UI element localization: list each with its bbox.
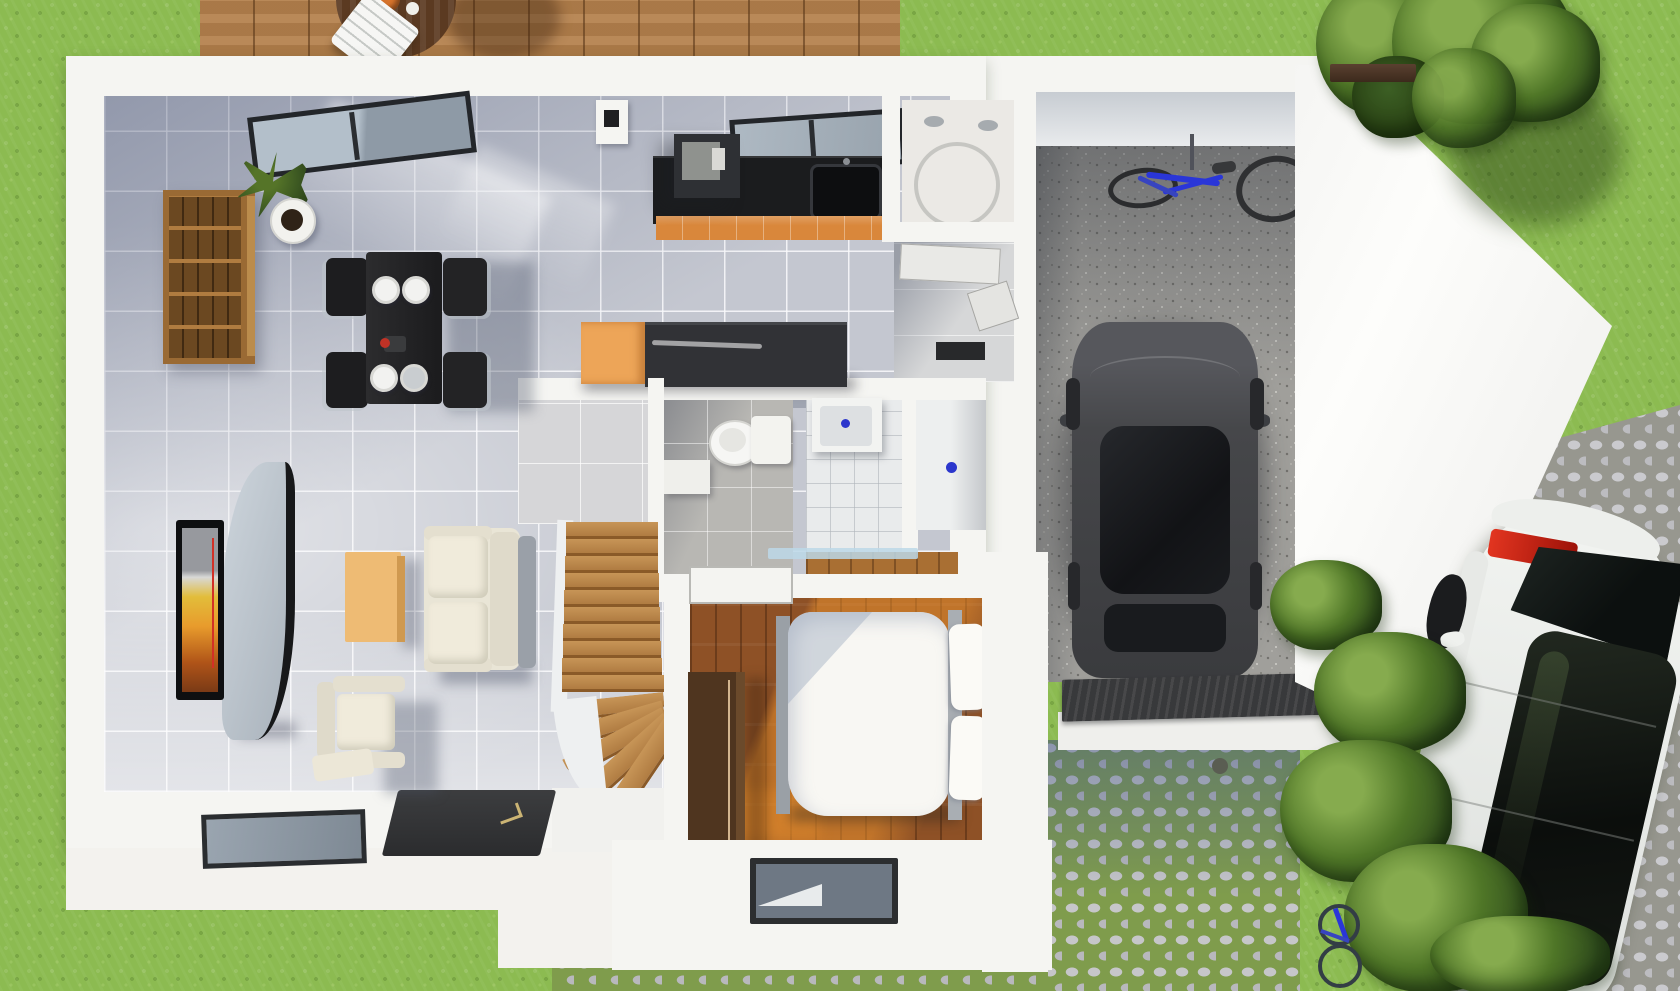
stair-landing [518,400,664,524]
bathroom-faucet-dot [841,419,850,428]
garage-car [1072,322,1258,678]
dining-chair-tr [443,258,487,316]
hedge-strip [1330,64,1416,82]
utility-wall-south [882,222,1014,242]
toilet-seat [719,428,746,452]
stair-tread [562,675,664,692]
plate [372,276,400,304]
entry-door-panel [382,790,556,856]
bush [1412,48,1516,148]
stair-tread [562,658,662,675]
plate [370,364,398,392]
sofa-cushion-1 [428,536,488,598]
cube-shelf-side [247,196,255,356]
coffee-table-side [397,556,405,642]
shower-drain [946,462,957,473]
plate [400,364,428,392]
cube-shelf-cells [169,196,241,358]
armchair-arm-top [333,676,405,692]
wardrobe-side [736,672,745,864]
south-window [201,809,367,869]
bush [1314,632,1466,754]
deck-table-cup [406,2,419,15]
tv-picture-line [212,538,214,668]
kitchen-faucet [843,158,850,165]
kitchen-cabinets [656,216,882,240]
hall-door-panel [689,566,793,604]
stair-tread [565,573,659,590]
kitchen-sink [810,164,882,220]
water-heater [914,142,1000,228]
hallway-door-leaf [899,243,1001,284]
bike-hook [1190,134,1194,170]
garage-car-wheel-fr [1250,378,1264,430]
kitchen-island-cap [581,322,645,384]
ceiling-vent-1 [924,116,944,127]
dining-chair-br [443,352,487,408]
stair-tread [565,556,658,573]
garage-north-wall [944,56,1346,96]
ceiling-vent-2 [978,120,998,131]
stair-tread [566,522,658,539]
bush [1430,916,1610,991]
floor-plan-render [0,0,1680,991]
garage-car-roof-glass [1100,426,1230,594]
wall-bedroom-west [664,598,690,852]
table-centerpiece-red [380,338,390,348]
sofa-backrest [490,532,520,666]
dining-chair-bl [326,352,368,408]
coffee-table [345,552,401,642]
bedroom-window [750,858,898,924]
wardrobe-handle [728,680,730,856]
kitchen-island [645,322,847,387]
armchair-back [317,682,335,758]
shower-glass-screen [768,548,918,559]
garage-car-wheel-fl [1066,378,1080,430]
stair-tread [564,607,660,624]
garage-car-wheel-rl [1068,562,1080,610]
garage-car-hood-line [1090,356,1240,398]
stair-tread [564,590,659,607]
plate [402,276,430,304]
garage-car-wheel-rr [1250,562,1262,610]
kitchen-appliance-detail [712,148,725,170]
garage-car-rear-window [1104,604,1226,652]
chimney-flue [604,110,619,127]
sofa-backrest-shade [518,536,536,668]
drain-cover [1212,758,1228,774]
plant-soil [281,209,303,231]
garden-bicycle-wheel [1318,944,1362,988]
dining-chair-tl [326,258,368,316]
closet-doors [936,342,985,360]
garage-north-wall-face [1036,92,1304,146]
wc-bin [664,460,710,494]
stair-tread [563,624,660,641]
utility-wall-west [882,94,900,234]
toilet-tank [751,416,791,464]
house-apron-corner [498,848,628,968]
stair-tread [566,539,658,556]
armchair-seat [337,694,395,750]
wardrobe [688,672,740,864]
stair-tread [563,641,661,658]
sofa-cushion-2 [428,602,488,664]
